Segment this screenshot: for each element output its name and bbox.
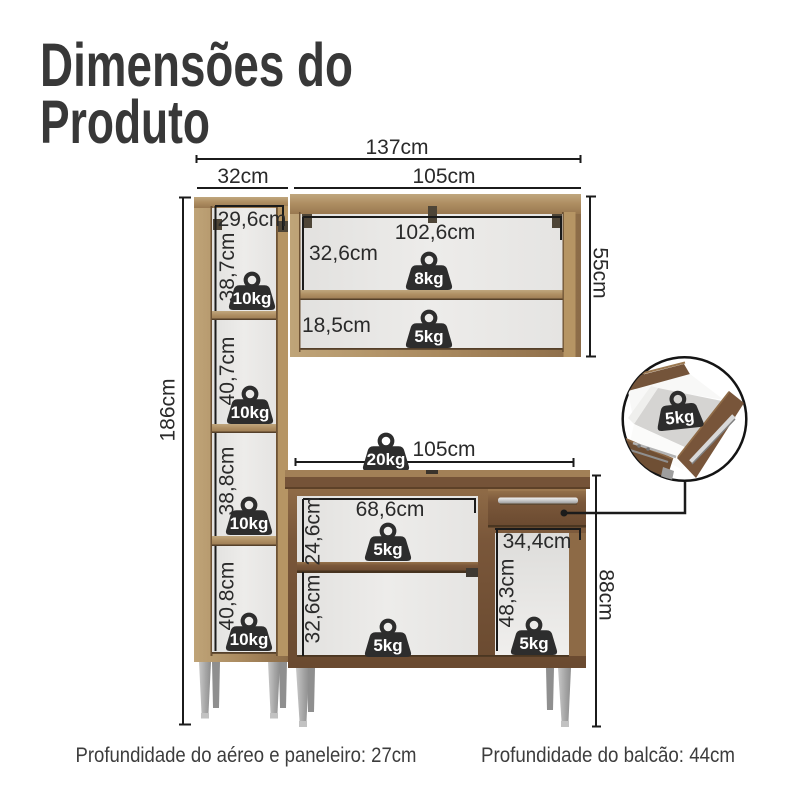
- svg-text:40,8cm: 40,8cm: [216, 562, 239, 631]
- svg-text:18,5cm: 18,5cm: [302, 314, 371, 337]
- svg-text:105cm: 105cm: [412, 165, 475, 188]
- svg-text:38,8cm: 38,8cm: [216, 447, 239, 516]
- svg-text:8kg: 8kg: [414, 269, 443, 288]
- svg-text:10kg: 10kg: [230, 630, 269, 649]
- svg-text:88cm: 88cm: [595, 569, 618, 620]
- svg-text:32,6cm: 32,6cm: [302, 575, 325, 644]
- svg-text:40,7cm: 40,7cm: [216, 337, 239, 406]
- svg-text:20kg: 20kg: [367, 450, 406, 469]
- svg-text:34,4cm: 34,4cm: [503, 530, 572, 553]
- svg-text:5kg: 5kg: [664, 407, 695, 429]
- svg-text:137cm: 137cm: [365, 136, 428, 159]
- svg-text:48,3cm: 48,3cm: [496, 559, 519, 628]
- svg-text:5kg: 5kg: [373, 540, 402, 559]
- svg-text:Produto: Produto: [40, 88, 210, 156]
- svg-text:Profundidade do balcão: 44cm: Profundidade do balcão: 44cm: [481, 744, 735, 767]
- svg-text:Profundidade do aéreo e panele: Profundidade do aéreo e paneleiro: 27cm: [76, 744, 417, 767]
- svg-text:105cm: 105cm: [412, 438, 475, 461]
- svg-text:5kg: 5kg: [414, 327, 443, 346]
- svg-text:102,6cm: 102,6cm: [395, 221, 476, 244]
- svg-text:32cm: 32cm: [217, 165, 268, 188]
- svg-text:29,6cm: 29,6cm: [218, 208, 287, 231]
- svg-text:32,6cm: 32,6cm: [309, 242, 378, 265]
- svg-text:55cm: 55cm: [589, 247, 612, 298]
- svg-text:24,6cm: 24,6cm: [302, 497, 325, 566]
- svg-text:5kg: 5kg: [519, 634, 548, 653]
- svg-text:10kg: 10kg: [231, 403, 270, 422]
- svg-text:5kg: 5kg: [373, 636, 402, 655]
- svg-text:10kg: 10kg: [230, 514, 269, 533]
- svg-text:186cm: 186cm: [157, 378, 180, 441]
- svg-text:10kg: 10kg: [233, 289, 272, 308]
- svg-text:68,6cm: 68,6cm: [356, 498, 425, 521]
